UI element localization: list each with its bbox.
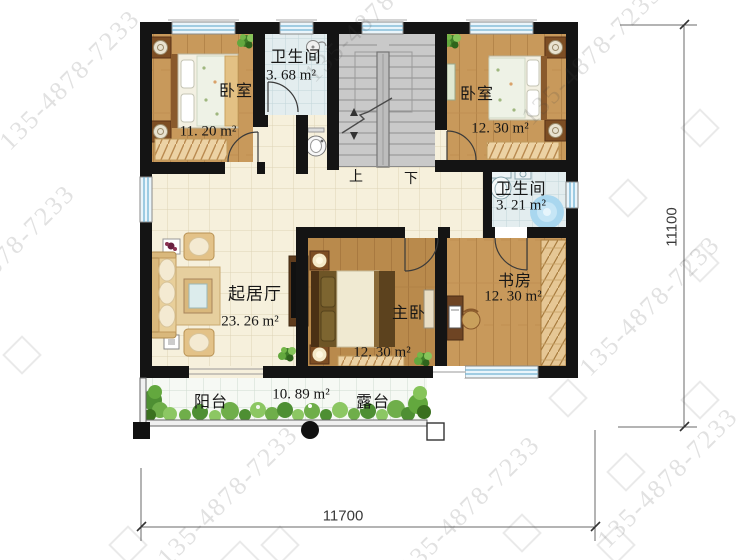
staircase xyxy=(339,34,435,167)
hall-sink xyxy=(306,128,326,156)
floor-plan-page: 卧室 11. 20 m² 卫生间 3. 68 m² 卧室 12. 30 m² 卫… xyxy=(0,0,750,560)
floor-plan xyxy=(0,0,750,560)
